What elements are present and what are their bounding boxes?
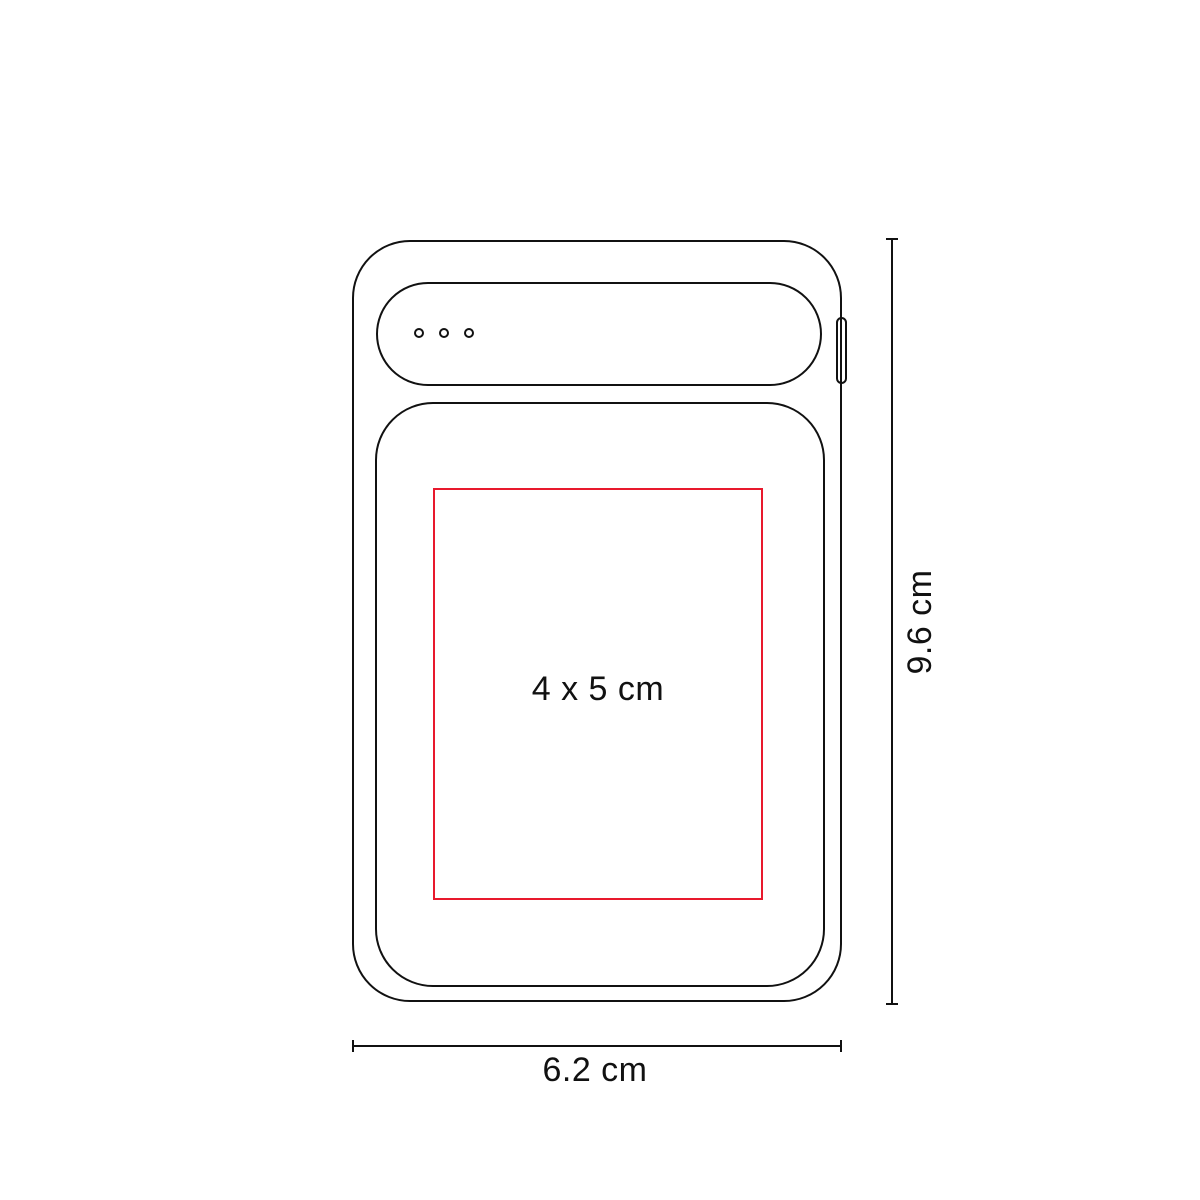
power-button-tab (836, 317, 847, 384)
height-dimension-line (891, 239, 893, 1005)
led-dots-group (414, 328, 474, 338)
width-dimension-line (353, 1045, 842, 1047)
height-dimension-cap-bottom (886, 1003, 898, 1005)
width-dimension-label: 6.2 cm (495, 1050, 695, 1090)
height-dimension-cap-top (886, 238, 898, 240)
led-indicator-dot-icon (439, 328, 449, 338)
led-indicator-dot-icon (464, 328, 474, 338)
width-dimension-cap-left (352, 1040, 354, 1052)
print-area-rect: 4 x 5 cm (433, 488, 763, 900)
width-dimension-cap-right (840, 1040, 842, 1052)
diagram-canvas: 4 x 5 cm 9.6 cm 6.2 cm (0, 0, 1200, 1200)
led-indicator-dot-icon (414, 328, 424, 338)
print-area-label: 4 x 5 cm (532, 670, 664, 709)
height-dimension-label: 9.6 cm (898, 542, 942, 702)
